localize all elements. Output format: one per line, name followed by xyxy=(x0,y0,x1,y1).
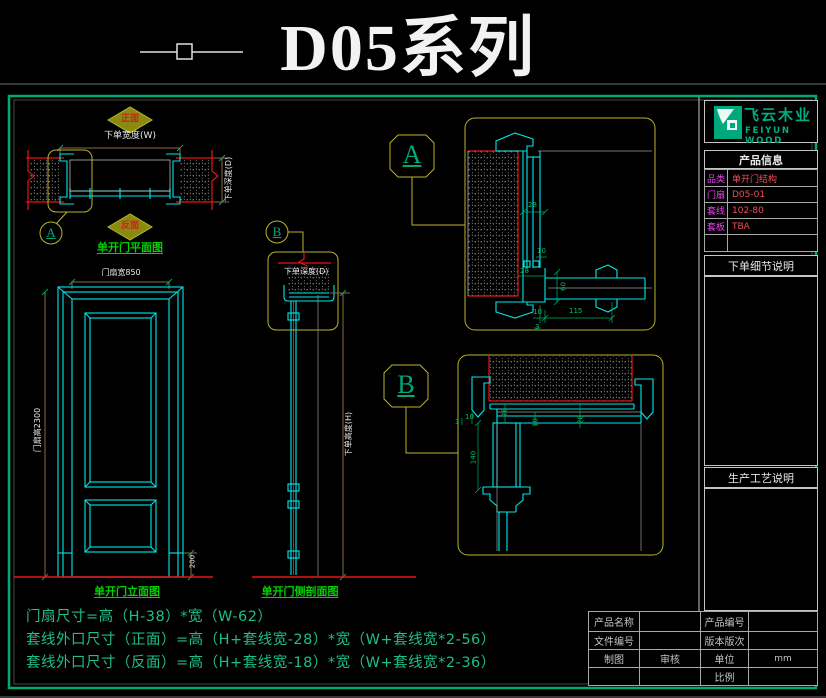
plan-depth-dim-label: 下单深度(D) xyxy=(225,144,233,214)
elevation-caption: 单开门立面图 xyxy=(87,586,167,597)
plan-width-dim-label: 下单宽度(W) xyxy=(90,132,170,141)
detail-a-dim-10a: 10 xyxy=(537,248,546,255)
product-info-table: 品类 单开门结构 门扇 D05-01 套线 102-80 套板 TBA xyxy=(704,169,818,252)
info-row-value: 单开门结构 xyxy=(728,170,817,186)
brand-name-en: FEIYUN WOOD xyxy=(745,126,826,146)
detail-b-dim-10a: 10 xyxy=(465,414,474,421)
detail-b-dim-140: 140 xyxy=(471,446,478,470)
detail-a-linework xyxy=(390,118,655,330)
info-row-value: D05-01 xyxy=(728,187,817,202)
side-depth-label: 下单深度(D) xyxy=(284,268,334,276)
plan-caption: 单开门平面图 xyxy=(90,242,170,253)
review-label: 审核 xyxy=(640,650,700,667)
info-row-value: TBA xyxy=(728,219,817,234)
scale-value xyxy=(749,668,817,685)
detail-a-dim-3: 3 xyxy=(535,324,539,331)
file-no-label: 文件编号 xyxy=(589,632,639,649)
process-notes-body xyxy=(704,488,818,611)
detail-b-linework xyxy=(384,355,663,555)
info-row-empty xyxy=(728,235,817,251)
info-row-empty xyxy=(705,235,727,251)
unit-value: mm xyxy=(749,650,817,667)
info-row-label: 门扇 xyxy=(705,187,727,202)
brand-logo xyxy=(713,105,743,141)
detail-a-dim-10b: 10 xyxy=(533,309,542,316)
product-no-value xyxy=(749,612,817,631)
detail-a-dim-28b: 28 xyxy=(520,268,529,275)
detail-b-dim-3: 3 xyxy=(455,419,459,426)
elevation-height-dim: 门扇高2300 xyxy=(34,390,42,470)
side-caption: 单开门侧剖面图 xyxy=(255,586,345,597)
draft-value xyxy=(589,668,639,685)
product-name-value xyxy=(640,612,700,631)
product-no-label: 产品编号 xyxy=(701,612,748,631)
side-callout-b: B xyxy=(270,225,284,238)
review-value xyxy=(640,668,700,685)
info-row-value: 102-80 xyxy=(728,203,817,218)
plan-front-label: 正面 xyxy=(118,115,142,124)
detail-a-dim-28a: 28 xyxy=(528,202,537,209)
scale-label: 比例 xyxy=(701,668,748,685)
draft-label: 制图 xyxy=(589,650,639,667)
sizing-formulas: 门扇尺寸=高（H-38）*宽（W-62） 套线外口尺寸（正面）=高（H+套线宽-… xyxy=(26,606,496,675)
detail-a-dim-115: 115 xyxy=(569,308,582,315)
detail-b-dim-10b: 10 xyxy=(533,413,540,433)
file-no-value xyxy=(640,632,700,649)
detail-a-dim-60: 60 xyxy=(561,277,568,297)
plan-back-label: 反面 xyxy=(118,222,142,231)
elevation-width-dim: 门扇宽850 xyxy=(85,269,157,277)
detail-b-label: B xyxy=(394,372,418,398)
info-row-label: 品类 xyxy=(705,170,727,186)
side-section-linework xyxy=(252,221,416,580)
detail-b-dim-28a: 28 xyxy=(502,403,509,423)
sheet-title: D05系列 xyxy=(238,0,578,90)
process-notes-header: 生产工艺说明 xyxy=(704,467,818,488)
side-height-dim-label: 下单高度(H) xyxy=(345,394,353,474)
brand-name-cn: 飞云木业 xyxy=(744,104,812,125)
elevation-linework xyxy=(14,279,213,580)
cad-sheet: D05系列 正面 下单宽度(W) 下单深度(D) 反面 A 单开门平面图 门扇宽… xyxy=(0,0,826,698)
info-row-label: 套板 xyxy=(705,219,727,234)
formula-casing-back: 套线外口尺寸（反面）=高（H+套线宽-18）*宽（W+套线宽*2-36） xyxy=(26,652,496,675)
order-notes-body xyxy=(704,276,818,466)
formula-casing-front: 套线外口尺寸（正面）=高（H+套线宽-28）*宽（W+套线宽*2-56） xyxy=(26,629,496,652)
formula-door-size: 门扇尺寸=高（H-38）*宽（W-62） xyxy=(26,606,496,629)
detail-b-dim-28b: 28 xyxy=(578,410,585,430)
order-notes-header: 下单细节说明 xyxy=(704,255,818,276)
plan-callout-a: A xyxy=(44,226,58,239)
elevation-bottom-dim: 200 xyxy=(190,547,197,577)
version-label: 版本版次 xyxy=(701,632,748,649)
title-block: 产品名称 产品编号 文件编号 版本版次 制图 审核 单位 mm 比例 xyxy=(588,611,818,686)
product-info-header: 产品信息 xyxy=(704,150,818,169)
detail-a-label: A xyxy=(400,142,424,168)
version-value xyxy=(749,632,817,649)
title-marker xyxy=(140,44,243,59)
unit-label: 单位 xyxy=(701,650,748,667)
info-row-label: 套线 xyxy=(705,203,727,218)
product-name-label: 产品名称 xyxy=(589,612,639,631)
